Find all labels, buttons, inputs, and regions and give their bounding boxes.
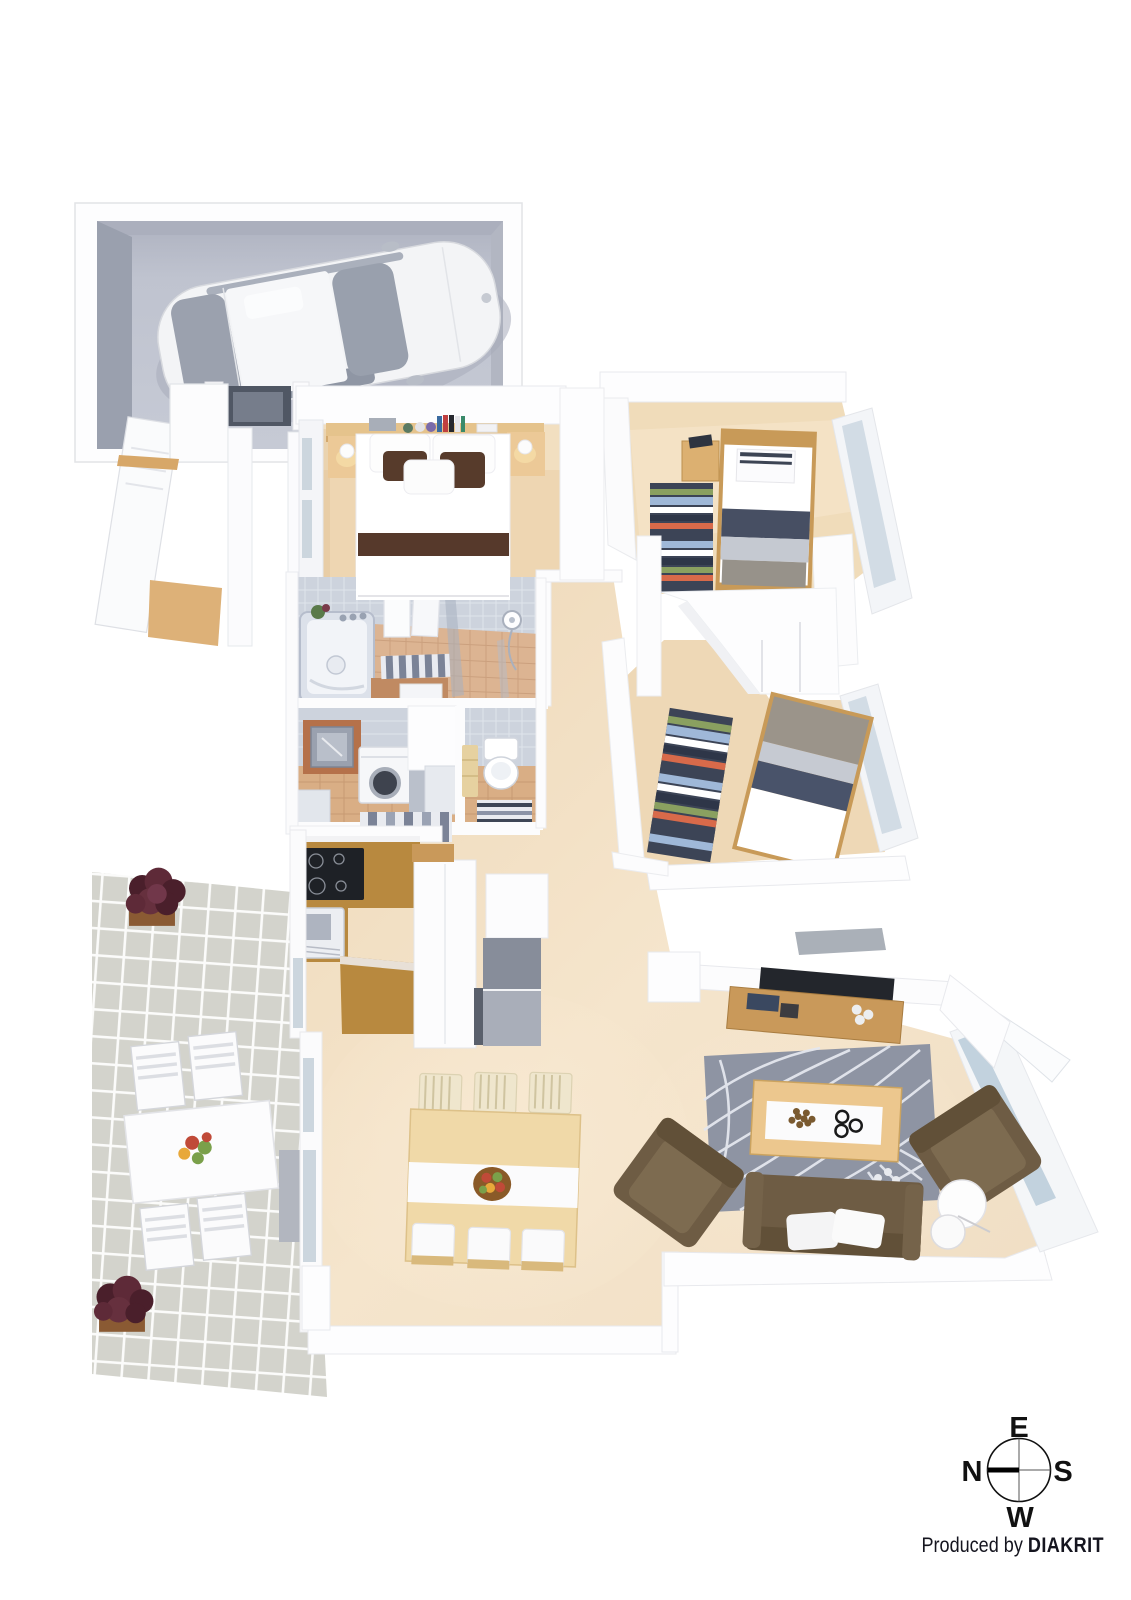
- svg-text:W: W: [1006, 1502, 1034, 1534]
- svg-text:S: S: [1053, 1456, 1072, 1488]
- svg-text:Produced by DIAKRIT: Produced by DIAKRIT: [921, 1534, 1104, 1558]
- svg-text:N: N: [962, 1456, 983, 1488]
- svg-text:E: E: [1009, 1412, 1028, 1444]
